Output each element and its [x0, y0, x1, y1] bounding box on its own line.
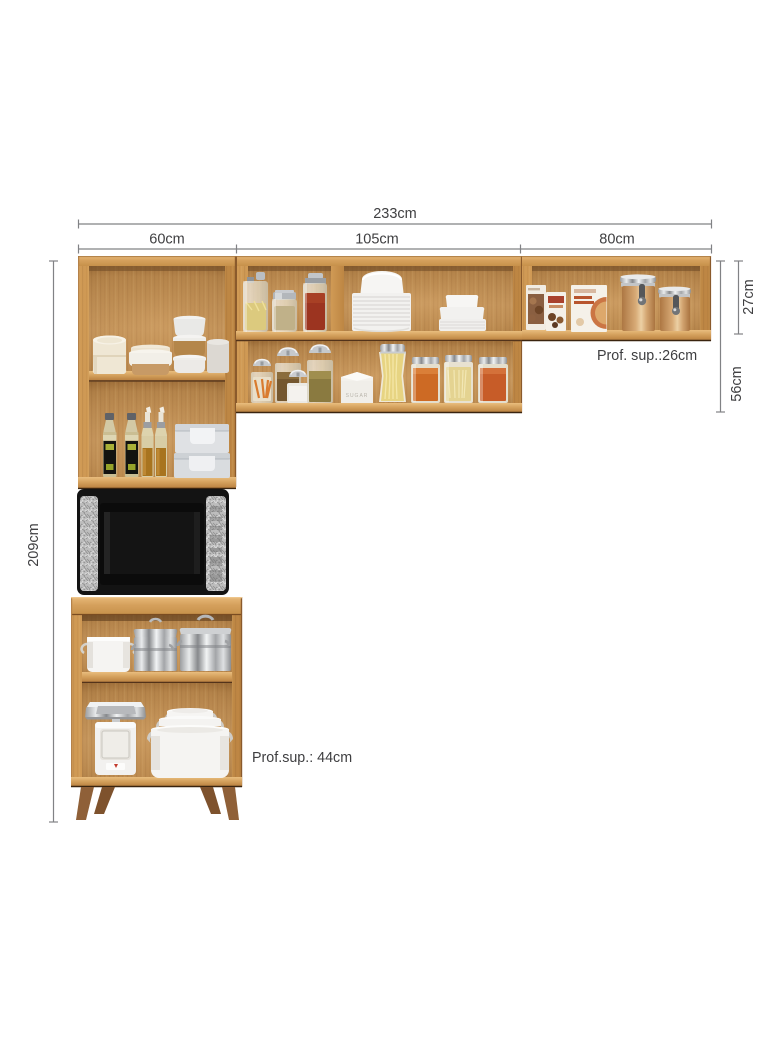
svg-text:233cm: 233cm — [373, 206, 417, 222]
svg-text:Prof.sup.: 44cm: Prof.sup.: 44cm — [252, 750, 352, 766]
svg-text:Prof. sup.:26cm: Prof. sup.:26cm — [597, 348, 697, 364]
svg-text:80cm: 80cm — [599, 232, 634, 248]
svg-text:209cm: 209cm — [26, 523, 42, 567]
svg-text:60cm: 60cm — [149, 232, 184, 248]
svg-text:27cm: 27cm — [741, 279, 757, 314]
svg-text:SUGAR: SUGAR — [346, 393, 369, 399]
svg-text:56cm: 56cm — [729, 366, 745, 401]
svg-text:105cm: 105cm — [355, 232, 399, 248]
